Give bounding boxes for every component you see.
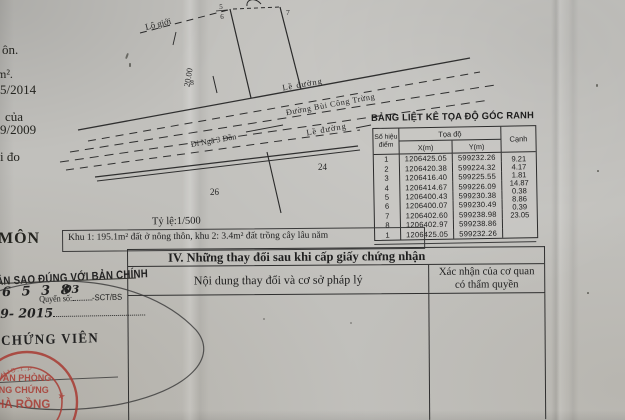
scanned-land-document: ôn. m². 5/2014 của 9/2009 i đo MÔN [0,0,625,420]
y-value: 599232.26 [454,228,503,238]
point-id: 4 [374,183,400,193]
col-header-point: Số hiệuđiểm [373,129,399,155]
lot-number-24: 24 [318,162,328,172]
direction-arrow-line [246,125,283,132]
point8-tick [213,76,217,93]
seal-office-line1: VĂN PHÒNG [0,372,51,383]
ink-speck [129,63,131,67]
signature-underline [0,377,118,383]
seal-office-line2: CÔNG CHỨNG [0,384,49,395]
seal-office-line3: NHÀ RỒNG [0,398,50,411]
ink-speck [597,170,599,172]
point-id: 3 [374,173,400,183]
col-header-y: Y(m) [452,140,501,154]
section-iv-header-row: Nội dung thay đổi và cơ sở pháp lý Xác n… [127,263,545,296]
handwritten-book-number: 03 [64,283,79,296]
col-header-x: X(m) [400,141,453,155]
book-number-suffix: -SCT/BS [92,292,122,303]
date-line: 9- 2015 [0,303,145,322]
dotted-fill [53,305,145,317]
col-header-confirmation: Xác nhận của cơ quan có thẩm quyền [428,264,544,293]
point-label-7: 7 [286,8,290,17]
direction-label: Đi Ngã 3 Đồn [190,132,237,149]
lot-number-26: 26 [210,187,220,197]
point-id: 6 [375,202,401,212]
col-header-edge: Cạnh [501,126,535,153]
edge-length-column: 9.21 4.17 1.81 14.87 0.38 8.86 0.39 23.0… [502,152,537,238]
coordinate-table: Số hiệuđiểm Tọa độ Cạnh X(m) Y(m) 1 1206… [372,125,538,241]
street-name-label: Đường Bùi Công Trừng [285,92,376,117]
edge-length: 23.05 [503,212,537,221]
point-id: 1 [374,155,400,165]
scale-label: Tỷ lệ:1/500 [152,216,201,228]
lot-divider [267,152,281,213]
sketch-labels: Lộ giới 20.00 5 6 7 8 Lề đường Đường Bùi… [144,3,376,197]
seal-ring-text: A.Đ:4102 HJO.T.P [0,366,33,409]
seal-star-icon: ★ [57,390,67,401]
lo-gioi-tick [173,32,176,45]
ink-speck [587,292,589,294]
point-id: 7 [375,211,401,221]
content-cell-empty [128,294,430,420]
point-label-6: 6 [220,13,224,21]
handwritten-date: 9- 2015 [0,305,53,321]
seal-outer-circle [0,352,77,420]
point-label-8: 8 [190,78,194,87]
sidewalk-top-label: Lề đường [281,76,323,93]
sidewalk-bottom-label: Lề đường [305,121,347,138]
section-iv-table: IV. Những thay đổi sau khi cấp giấy chứn… [127,246,546,420]
red-notary-seal: A.Đ:4102 HJO.T.P ★ VĂN PHÒNG CÔNG CHỨNG … [0,352,77,420]
section-iv-body-row [127,293,546,420]
seal-inner-circle [0,367,62,420]
parcel-right-boundary [280,7,301,89]
table-title-leader [356,125,371,128]
parcel-top-edge [233,7,280,9]
ink-speck [596,84,598,87]
col-header-content: Nội dung thay đổi và cơ sở pháp lý [128,265,428,295]
handwritten-curve [247,0,261,6]
lo-gioi-label: Lộ giới [144,16,173,32]
point-id: 5 [374,192,400,202]
point-id: 2 [374,164,400,174]
area-note-text: Khu 1: 195.1m² đất ở nông thôn, khu 2: 3… [68,231,328,243]
book-number-line: Quyển số:-SCT/BS [39,290,122,304]
point-label-5: 5 [219,3,223,11]
confirmation-cell-empty [429,293,545,420]
parcel-left-boundary [230,9,251,98]
notary-title-text: CHỨNG VIÊN [1,331,99,350]
